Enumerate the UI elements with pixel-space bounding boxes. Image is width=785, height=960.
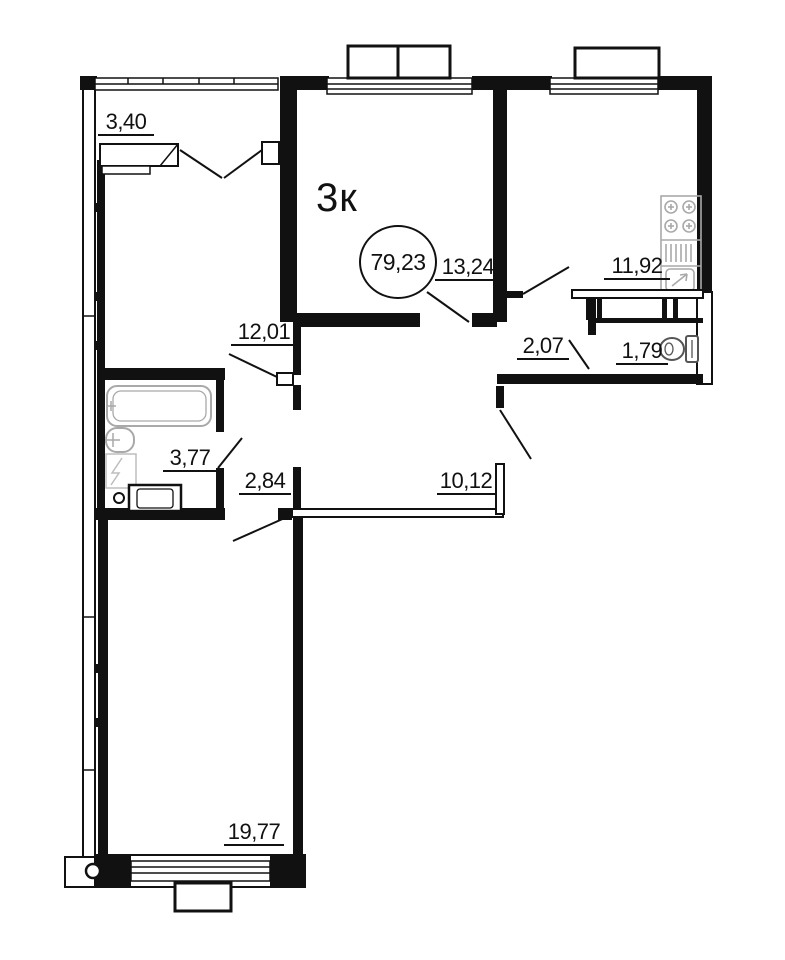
vent-shaft xyxy=(175,883,231,911)
door-leaf xyxy=(233,517,287,541)
wall xyxy=(97,160,105,515)
door-leaf xyxy=(500,410,531,459)
room-label-closet: 3,40 xyxy=(98,110,154,136)
door-jamb xyxy=(262,142,279,164)
door-leaf xyxy=(427,292,469,322)
wall xyxy=(216,375,224,432)
wall-stub xyxy=(505,291,523,298)
wall xyxy=(472,76,552,90)
table-top xyxy=(572,290,703,298)
wall-corner xyxy=(270,856,305,886)
sink-arrow-icon xyxy=(672,274,687,286)
washing-machine-icon xyxy=(114,485,181,511)
table-leg xyxy=(597,298,602,320)
window xyxy=(327,78,472,94)
room-label-wc: 1,79 xyxy=(616,339,668,365)
wall xyxy=(98,515,108,857)
door-leaf xyxy=(224,150,262,178)
apartment-type-label: 3к xyxy=(316,176,358,221)
wall xyxy=(293,517,303,859)
shelf xyxy=(102,166,150,174)
wall xyxy=(493,88,507,322)
total-area-badge: 79,23 xyxy=(359,225,437,299)
door-leaf xyxy=(218,438,242,468)
table-leg xyxy=(662,298,667,320)
table-leg xyxy=(673,298,678,320)
wall xyxy=(697,292,712,384)
floor-plan-drawing xyxy=(0,0,785,960)
shelf xyxy=(100,144,178,166)
floor-plan: 3к 79,23 3,40 12,01 13,24 11,92 2,07 1,7… xyxy=(0,0,785,960)
wall xyxy=(697,76,712,292)
wall xyxy=(83,77,95,885)
room-label-room-12: 12,01 xyxy=(231,320,297,346)
wall xyxy=(593,318,703,323)
room-label-bathroom: 3,77 xyxy=(163,446,217,472)
wall xyxy=(280,76,297,322)
door-jamb xyxy=(496,386,504,408)
door-leaf xyxy=(229,354,277,377)
door-leaf xyxy=(180,150,222,178)
table-leg xyxy=(586,298,591,320)
window xyxy=(131,861,270,881)
wall xyxy=(297,76,329,90)
wall xyxy=(216,468,224,513)
bathtub-icon xyxy=(107,386,211,426)
wall xyxy=(293,467,301,510)
exterior-walls xyxy=(65,76,712,887)
room-label-living-room: 19,77 xyxy=(224,820,284,846)
wall-thin xyxy=(292,509,503,517)
bathtub-inner xyxy=(113,391,206,421)
lightning-icon xyxy=(111,458,122,485)
wall xyxy=(97,368,225,380)
room-label-room-13: 13,24 xyxy=(435,255,501,281)
room-label-hall: 2,07 xyxy=(517,334,569,360)
room-label-corridor: 10,12 xyxy=(437,469,495,495)
wall-thin xyxy=(496,464,504,514)
room-label-kitchen: 11,92 xyxy=(604,254,670,280)
washing-machine-drum xyxy=(137,489,173,508)
window xyxy=(550,78,658,94)
windows xyxy=(95,46,659,911)
wall xyxy=(297,313,420,327)
door-leaf xyxy=(523,267,569,294)
door-leaf xyxy=(569,340,589,369)
bathroom-fixtures xyxy=(106,386,211,488)
sink-arrow-icon xyxy=(680,274,687,275)
sink-arrow-icon xyxy=(686,274,687,281)
closet-shelf-icon xyxy=(100,144,178,174)
wall xyxy=(497,374,703,384)
drain-icon xyxy=(114,493,124,503)
room-label-hallway: 2,84 xyxy=(239,469,291,495)
door-jamb xyxy=(277,373,293,385)
wall xyxy=(293,385,301,410)
vent-shaft xyxy=(575,48,659,78)
riser-pipe xyxy=(86,864,100,878)
